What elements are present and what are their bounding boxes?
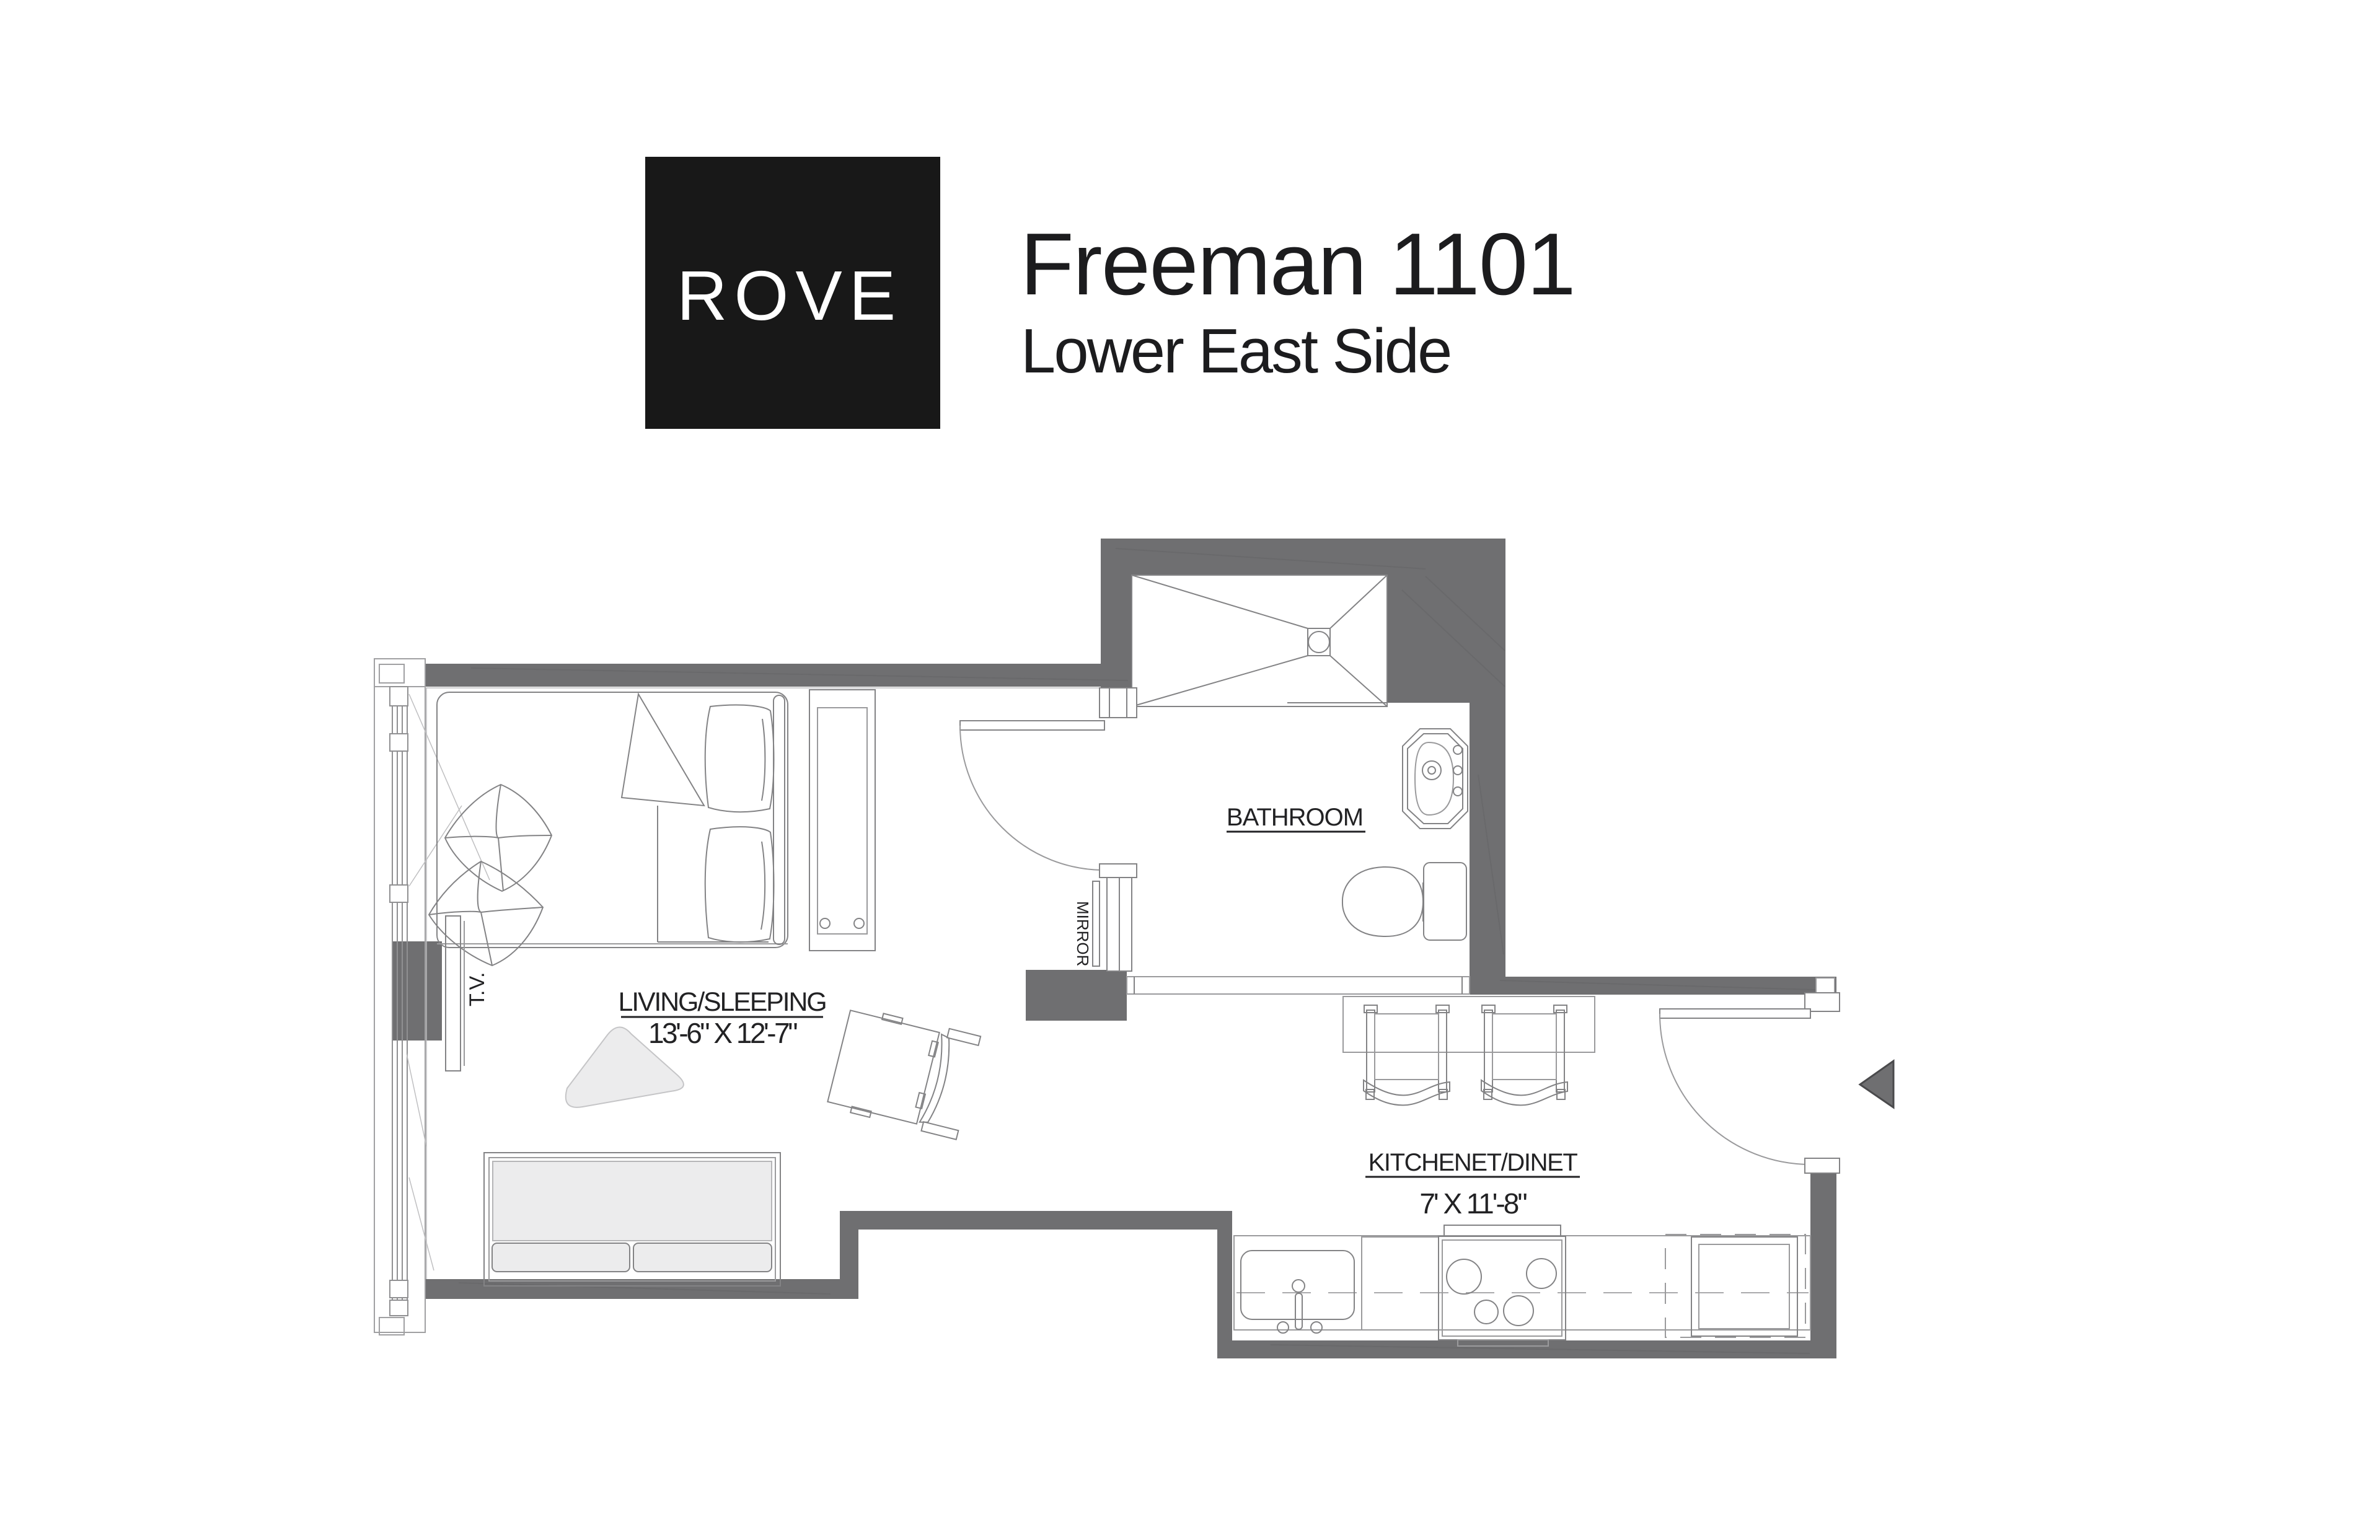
svg-text:BATHROOM: BATHROOM [1227, 804, 1363, 831]
svg-text:13'-6" X 12'-7": 13'-6" X 12'-7" [648, 1017, 797, 1049]
svg-text:T.V.: T.V. [465, 972, 489, 1006]
svg-text:Lower East Side: Lower East Side [1021, 317, 1450, 386]
svg-text:MIRROR: MIRROR [1073, 901, 1092, 966]
svg-text:ROVE: ROVE [677, 257, 902, 335]
svg-text:LIVING/SLEEPING: LIVING/SLEEPING [618, 987, 826, 1017]
svg-text:Freeman 1101: Freeman 1101 [1020, 215, 1575, 314]
svg-text:7' X 11'-8": 7' X 11'-8" [1419, 1187, 1527, 1220]
svg-text:KITCHENET/DINET: KITCHENET/DINET [1368, 1149, 1578, 1176]
